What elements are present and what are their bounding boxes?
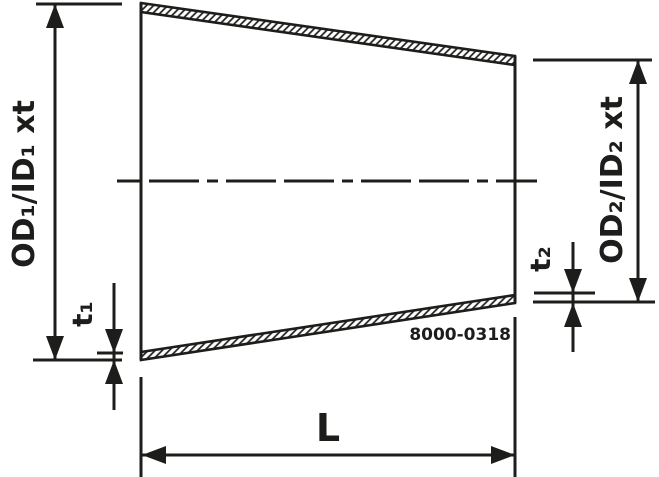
t2-dimension: t₂: [524, 242, 595, 352]
arrowhead-down-icon: [564, 269, 582, 293]
arrowhead-right-icon: [491, 446, 515, 464]
od2-label: OD₂/ID₂ xt: [595, 96, 630, 264]
od1-label: OD₁/ID₁ xt: [7, 100, 42, 268]
arrowhead-left-icon: [142, 446, 166, 464]
t2-label: t₂: [524, 246, 557, 272]
t1-label: t₁: [66, 301, 99, 327]
reducer-body: [117, 3, 537, 360]
arrowhead-down-icon: [629, 278, 647, 302]
arrowhead-up-icon: [564, 303, 582, 327]
arrowhead-down-icon: [46, 336, 64, 360]
reducer-technical-drawing: OD₁/ID₁ xt t₁ OD₂/ID₂ xt t₂ L 8000-0318: [0, 0, 659, 477]
t1-dimension: t₁: [66, 283, 123, 410]
arrowhead-down-icon: [105, 329, 123, 353]
arrowhead-up-icon: [105, 360, 123, 384]
pipe-wall-top: [141, 3, 515, 65]
arrowhead-up-icon: [629, 60, 647, 84]
drawing-canvas: OD₁/ID₁ xt t₁ OD₂/ID₂ xt t₂ L 8000-0318: [0, 0, 659, 477]
part-number: 8000-0318: [409, 325, 511, 345]
length-label: L: [316, 406, 340, 450]
arrowhead-up-icon: [46, 4, 64, 28]
od1-dimension: OD₁/ID₁ xt: [7, 4, 122, 360]
